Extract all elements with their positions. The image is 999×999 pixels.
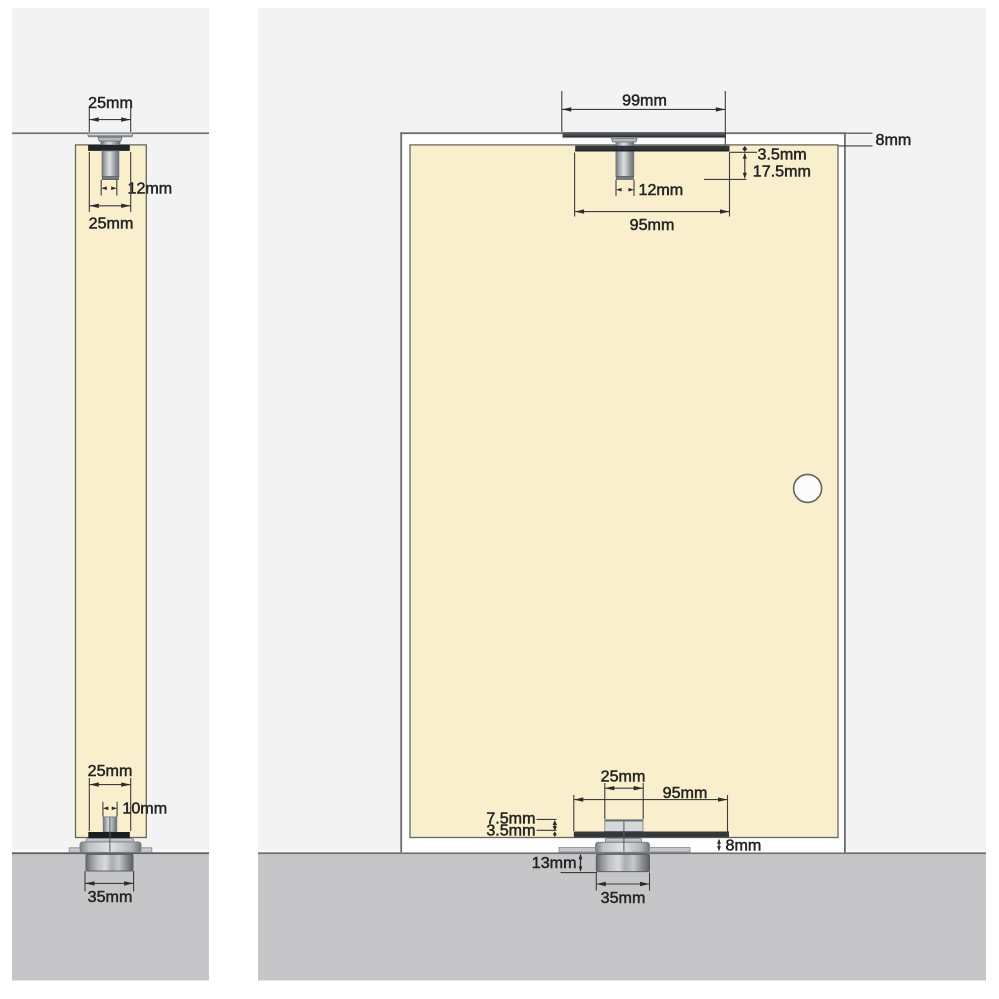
- svg-text:8mm: 8mm: [726, 837, 762, 855]
- svg-text:12mm: 12mm: [128, 180, 173, 198]
- svg-text:35mm: 35mm: [601, 889, 646, 907]
- svg-text:8mm: 8mm: [876, 131, 912, 149]
- svg-text:13mm: 13mm: [532, 854, 577, 872]
- svg-text:17.5mm: 17.5mm: [753, 163, 811, 181]
- svg-text:10mm: 10mm: [122, 800, 167, 818]
- svg-text:35mm: 35mm: [88, 888, 133, 906]
- svg-text:25mm: 25mm: [601, 767, 646, 785]
- svg-text:95mm: 95mm: [630, 216, 675, 234]
- svg-text:99mm: 99mm: [622, 92, 667, 110]
- svg-text:3.5mm: 3.5mm: [758, 145, 807, 163]
- svg-text:25mm: 25mm: [88, 762, 133, 780]
- svg-text:3.5mm: 3.5mm: [486, 821, 535, 839]
- svg-text:25mm: 25mm: [89, 215, 134, 233]
- svg-text:25mm: 25mm: [88, 94, 133, 112]
- svg-text:12mm: 12mm: [639, 181, 684, 199]
